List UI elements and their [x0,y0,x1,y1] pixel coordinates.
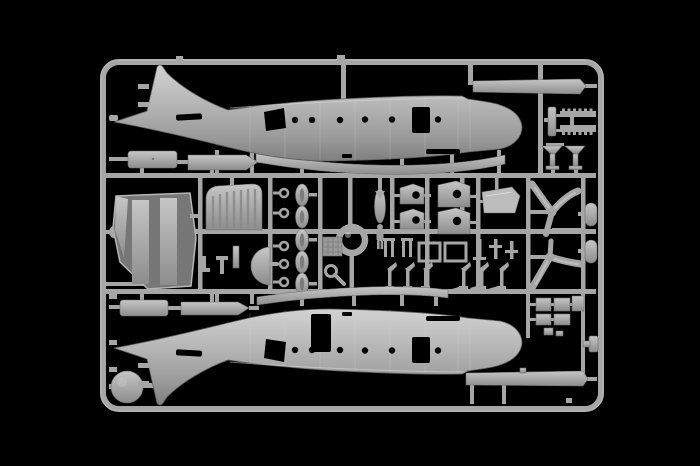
nacelle-strips-bottom [120,300,249,316]
strut-bracket-row [383,238,518,261]
cargo-door-cutout [311,314,331,352]
model-kit-sprue-photo: plastic model kit sprue of an aircraft o… [0,0,700,466]
landing-gear-legs [385,262,509,289]
wheel-disc-part [111,371,143,403]
tail-support-brackets [542,146,585,170]
key-part [326,266,345,285]
small-bracket-parts-left [198,256,228,274]
square-hatch-part [323,237,342,256]
small-rings-column [273,189,288,286]
fuselage-half-top [114,65,522,161]
sprue-scene: plastic model kit sprue of an aircraft o… [0,0,700,466]
serrated-strip-parts [560,109,596,136]
long-strip-bottom [466,368,588,386]
engine-pod-ovals [296,184,318,295]
nacelle-strips-top [128,151,258,170]
ribbed-cowling-part [206,184,262,230]
open-square-frame [445,243,466,261]
cockpit-glazing-part [482,187,520,213]
bomb-torpedo-part [375,189,386,223]
crew-seat-parts [400,181,470,234]
gate-stub [337,55,345,64]
crew-figure-part [377,224,384,249]
propeller-part-lower [532,241,581,288]
long-strip-part [473,79,586,94]
cabin-bulkhead-part [113,193,200,289]
gate-stub [176,56,183,64]
propeller-part-upper [532,184,578,234]
square-hatch-cluster [536,296,598,352]
